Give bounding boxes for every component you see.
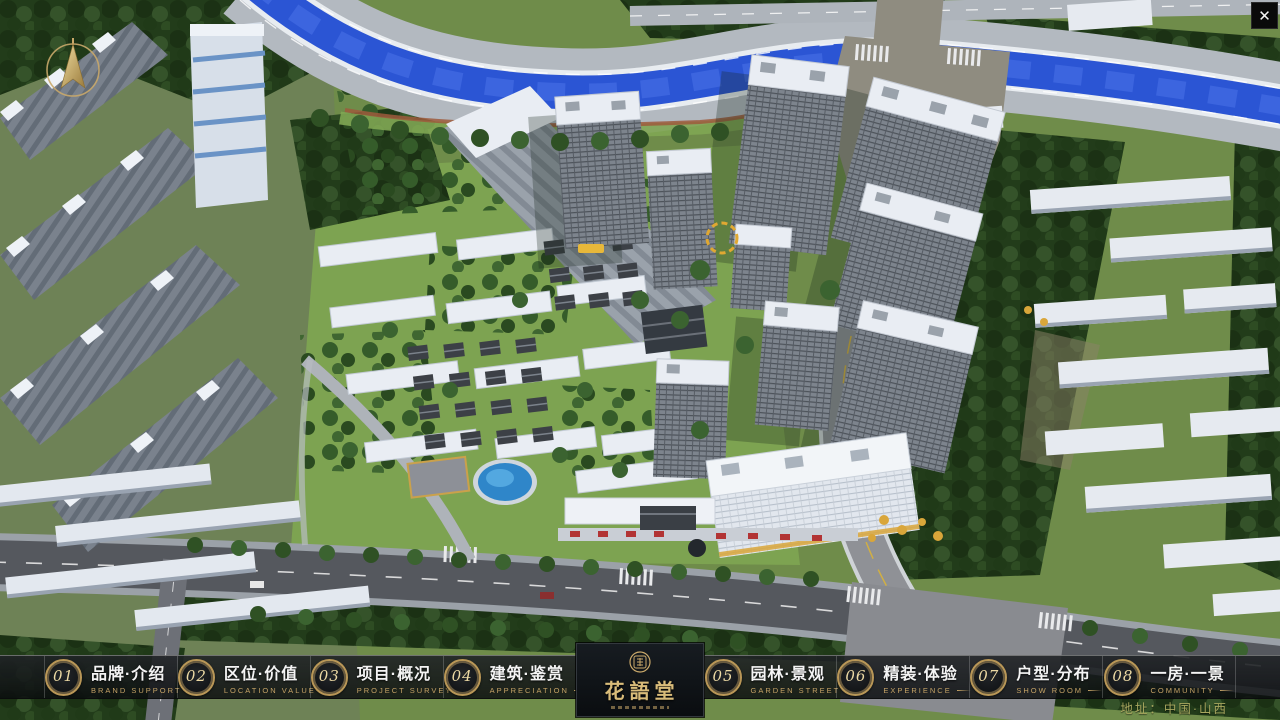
nav-item-garden[interactable]: 05 园林·景观 GARDEN STREET <box>704 656 837 698</box>
presentation-app: ✕ 01 品牌·介绍 BRAND SUPPORT 02 区位·价值 LOCATI… <box>0 0 1280 720</box>
nav-item-floorplans[interactable]: 07 户型·分布 SHOW ROOM <box>969 656 1102 698</box>
nav-badge: 05 <box>705 659 742 696</box>
nav-item-brand[interactable]: 01 品牌·介绍 BRAND SUPPORT <box>44 656 177 698</box>
nav-badge: 04 <box>444 659 481 696</box>
nav-item-project[interactable]: 03 项目·概况 PROJECT SURVEY <box>310 656 443 698</box>
logo-subtitle-rule <box>611 706 669 709</box>
nav-label: 区位·价值 <box>224 660 298 684</box>
project-logo-title: 花語堂 <box>600 675 680 704</box>
nav-label: 精装·体验 <box>883 660 957 684</box>
nav-badge: 01 <box>45 659 82 696</box>
nav-label: 一房·一景 <box>1150 660 1224 684</box>
logo-panel[interactable]: 花語堂 <box>576 643 704 717</box>
nav-label: 项目·概况 <box>357 660 431 684</box>
nav-label: 品牌·介绍 <box>91 660 165 684</box>
nav-sublabel: SHOW ROOM <box>1016 686 1102 695</box>
nav-label: 户型·分布 <box>1016 660 1090 684</box>
nav-item-views[interactable]: 08 一房·一景 COMMUNITY <box>1102 656 1236 698</box>
pool <box>473 459 537 505</box>
masterplan-render <box>0 0 1280 720</box>
nav-badge: 08 <box>1104 659 1141 696</box>
map-viewport[interactable] <box>0 0 1280 720</box>
nav-item-interior[interactable]: 06 精装·体验 EXPERIENCE <box>836 656 969 698</box>
nav-badge: 02 <box>178 659 215 696</box>
bottom-nav: 01 品牌·介绍 BRAND SUPPORT 02 区位·价值 LOCATION… <box>0 655 1280 699</box>
nav-badge: 03 <box>311 659 348 696</box>
close-button[interactable]: ✕ <box>1251 2 1278 29</box>
nav-label: 建筑·鉴赏 <box>490 660 564 684</box>
nav-sublabel: APPRECIATION <box>490 686 588 695</box>
seal-icon <box>629 651 651 673</box>
nav-sublabel: EXPERIENCE <box>883 686 970 695</box>
nav-label: 园林·景观 <box>751 660 825 684</box>
nav-badge: 07 <box>970 659 1007 696</box>
close-icon: ✕ <box>1258 7 1271 25</box>
address-text: 地址：中国·山西 <box>1120 698 1228 717</box>
nav-badge: 06 <box>837 659 874 696</box>
nav-item-architecture[interactable]: 04 建筑·鉴赏 APPRECIATION <box>443 656 576 698</box>
nav-sublabel: COMMUNITY <box>1150 686 1233 695</box>
nav-item-location[interactable]: 02 区位·价值 LOCATION VALUE <box>177 656 310 698</box>
